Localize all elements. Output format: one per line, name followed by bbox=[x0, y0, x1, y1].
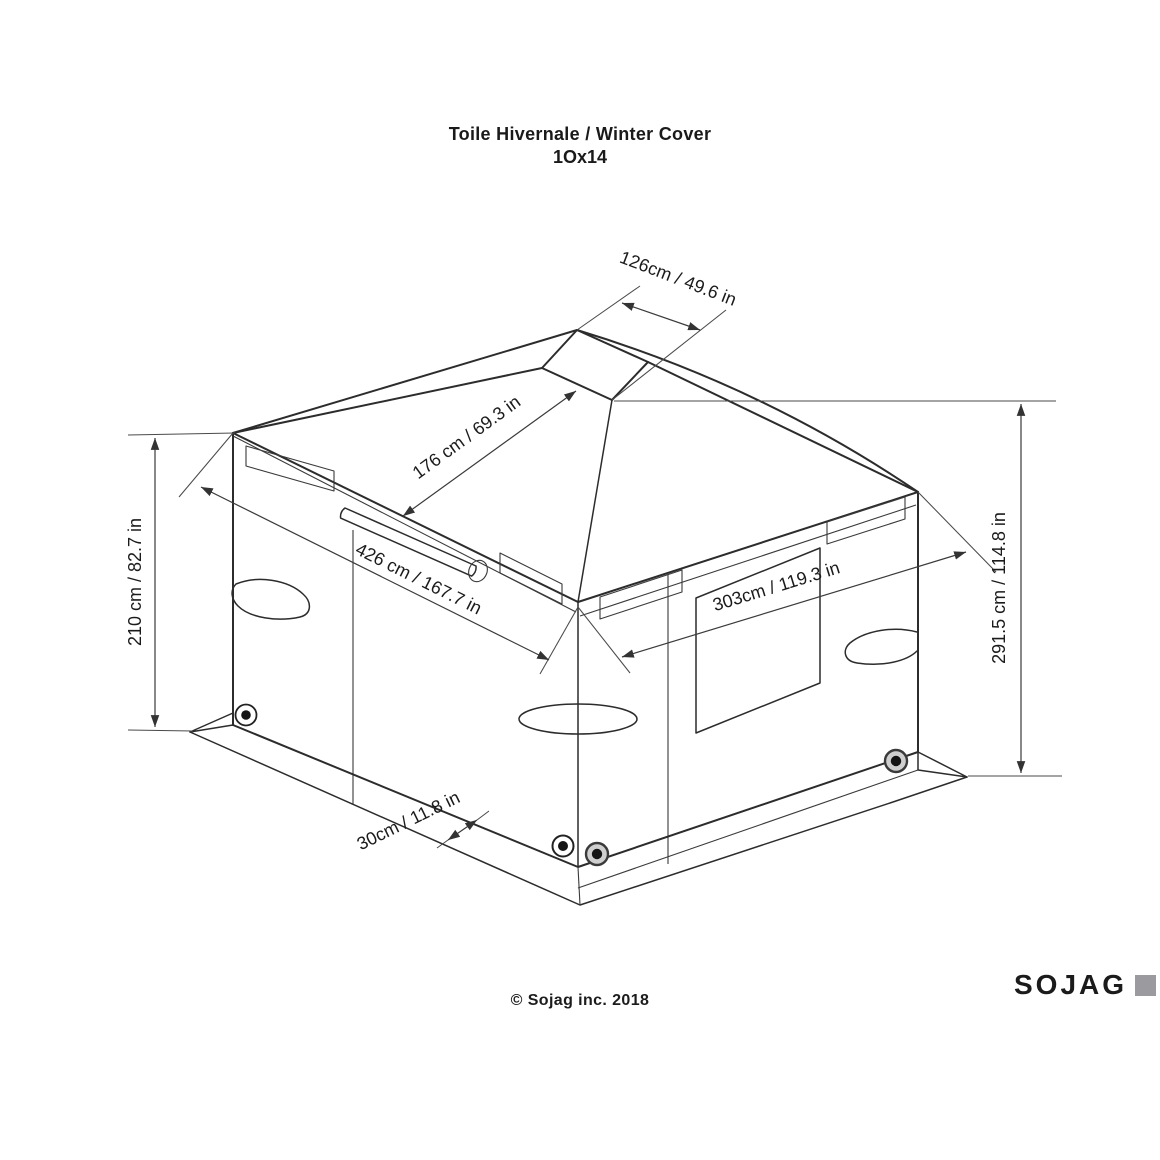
dimension-front-width: 426 cm / 167.7 in bbox=[179, 433, 578, 674]
grommet-front-2 bbox=[586, 843, 608, 865]
skirt-left-flap bbox=[190, 713, 233, 732]
left-wall-pocket-flap bbox=[232, 579, 309, 619]
skirt-mid-fold-right bbox=[578, 770, 918, 888]
dimension-label-roof-slope: 176 cm / 69.3 in bbox=[409, 391, 524, 482]
roof-ridge-line-outer bbox=[233, 330, 577, 433]
brand-logo: SOJAG bbox=[1014, 969, 1156, 1001]
dimension-wall-height: 210 cm / 82.7 in bbox=[125, 433, 235, 731]
wall-lines bbox=[233, 433, 918, 867]
dimension-label-top-opening: 126cm / 49.6 in bbox=[617, 247, 739, 310]
right-wall-pocket-flap bbox=[845, 629, 917, 664]
grommet-right bbox=[885, 750, 907, 772]
dimension-top-opening: 126cm / 49.6 in bbox=[577, 247, 739, 400]
winter-cover-diagram: 126cm / 49.6 in 176 cm / 69.3 in 426 cm … bbox=[0, 0, 1160, 1160]
grommet-left bbox=[236, 705, 257, 726]
dimension-label-wall-height: 210 cm / 82.7 in bbox=[125, 518, 145, 646]
copyright-text: © Sojag inc. 2018 bbox=[0, 992, 1160, 1010]
skirt-right-flap bbox=[918, 752, 967, 777]
dimension-roof-slope: 176 cm / 69.3 in bbox=[403, 391, 576, 516]
skirt-front-corner bbox=[578, 867, 580, 905]
grommet-front-1 bbox=[553, 836, 574, 857]
brand-square bbox=[1135, 975, 1156, 996]
vent-openings bbox=[232, 446, 917, 734]
dimension-label-front-width: 426 cm / 167.7 in bbox=[352, 539, 485, 619]
left-eave-vent-1 bbox=[246, 446, 334, 491]
roof-front-hip bbox=[578, 400, 612, 602]
brand-wordmark: SOJAG bbox=[1014, 969, 1127, 1001]
page: { "title": { "line1": "Toile Hivernale /… bbox=[0, 0, 1160, 1160]
roof-top-vent-square bbox=[542, 330, 648, 400]
dimension-total-height: 291.5 cm / 114.8 in bbox=[614, 401, 1062, 776]
dimension-label-total-height: 291.5 cm / 114.8 in bbox=[989, 512, 1009, 664]
dimension-skirt-depth: 30cm / 11.8 in bbox=[354, 787, 489, 854]
roof-right-hip bbox=[648, 362, 918, 492]
right-eave-vent-1 bbox=[600, 570, 682, 619]
right-eave-vent-2 bbox=[827, 497, 905, 544]
